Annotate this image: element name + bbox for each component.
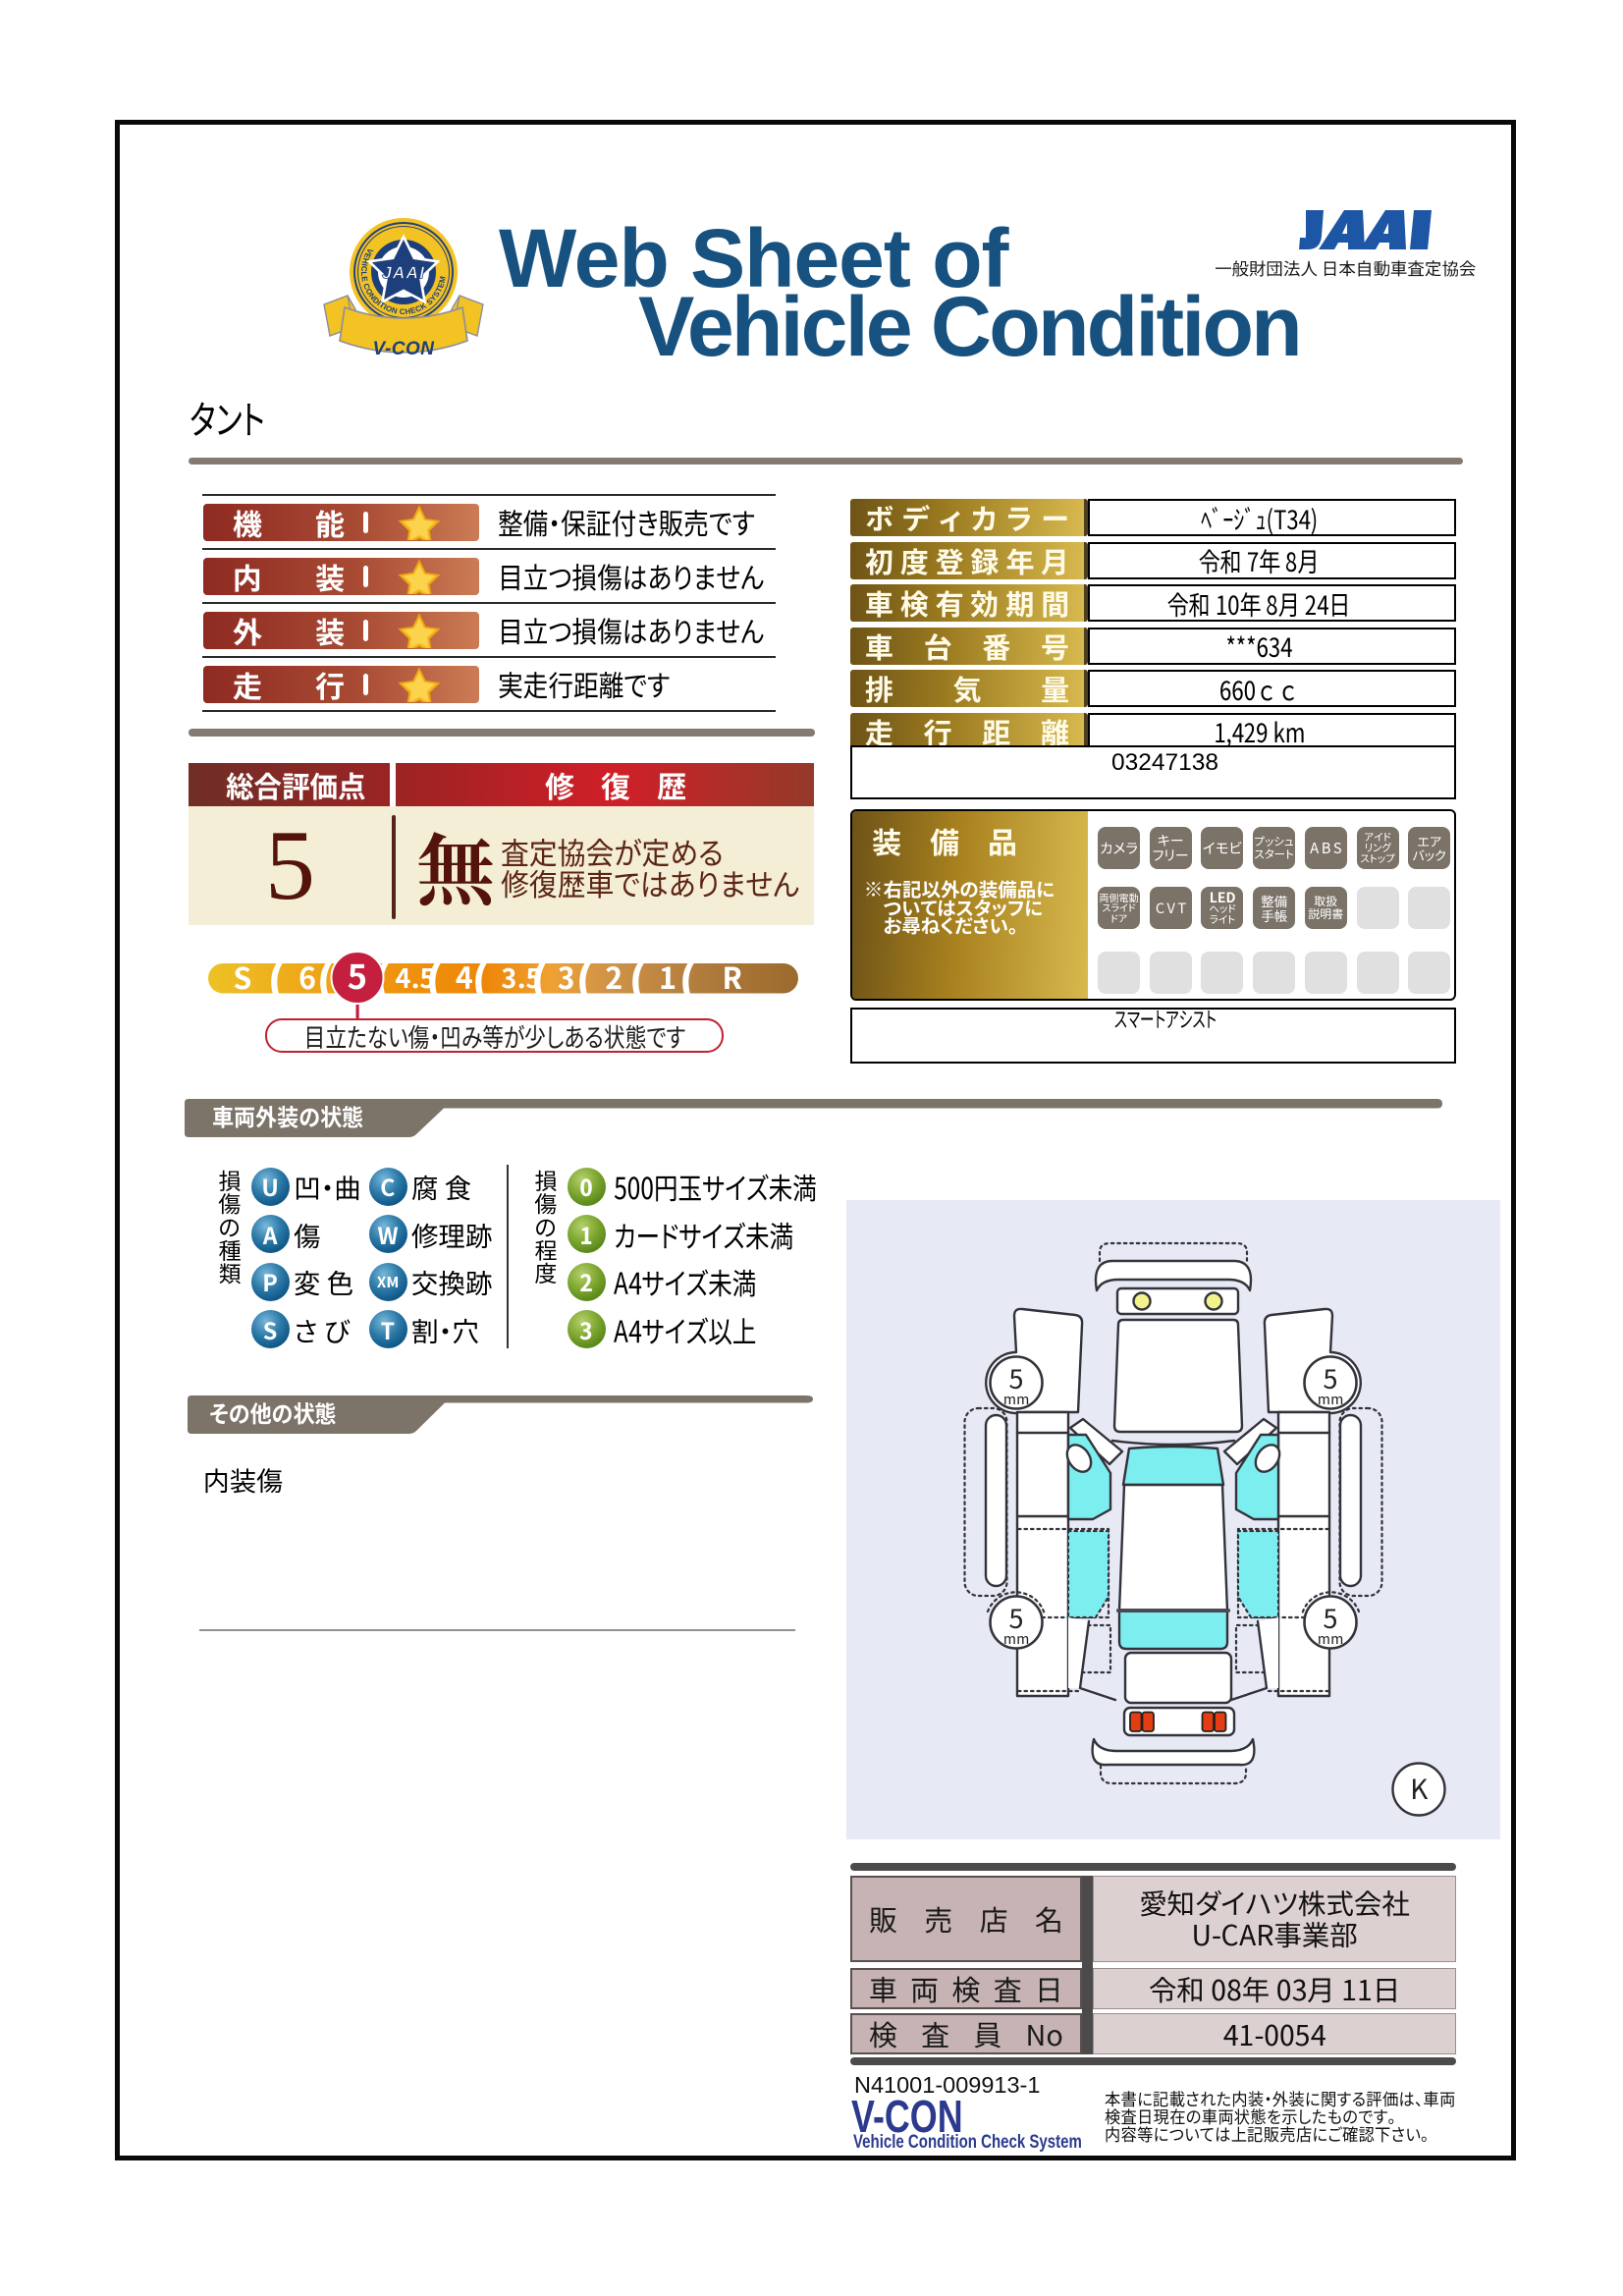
svg-text:6: 6 bbox=[298, 955, 316, 998]
svg-text:3.5: 3.5 bbox=[502, 957, 542, 996]
svg-text:mm: mm bbox=[1318, 1628, 1344, 1649]
svg-text:1: 1 bbox=[659, 955, 676, 998]
svg-text:mm: mm bbox=[1003, 1628, 1030, 1649]
svg-text:(: ( bbox=[630, 954, 645, 1004]
svg-text:車両外装の状態: 車両外装の状態 bbox=[212, 1099, 363, 1133]
svg-text:S: S bbox=[234, 955, 252, 998]
svg-text:JAAI: JAAI bbox=[382, 263, 425, 283]
svg-text:(: ( bbox=[577, 954, 592, 1004]
svg-text:(: ( bbox=[473, 954, 488, 1004]
svg-text:2: 2 bbox=[605, 955, 622, 998]
svg-text:(: ( bbox=[680, 954, 695, 1004]
svg-text:3: 3 bbox=[558, 955, 575, 998]
svg-text:その他の状態: その他の状態 bbox=[209, 1395, 336, 1430]
svg-text:4.5: 4.5 bbox=[396, 957, 436, 996]
svg-text:mm: mm bbox=[1003, 1389, 1030, 1409]
svg-text:4: 4 bbox=[456, 955, 473, 998]
svg-text:mm: mm bbox=[1318, 1389, 1344, 1409]
svg-text:R: R bbox=[723, 955, 742, 998]
svg-text:K: K bbox=[1410, 1769, 1429, 1808]
svg-text:(: ( bbox=[269, 954, 284, 1004]
svg-text:5: 5 bbox=[348, 951, 367, 999]
svg-text:V-CON: V-CON bbox=[372, 339, 435, 359]
